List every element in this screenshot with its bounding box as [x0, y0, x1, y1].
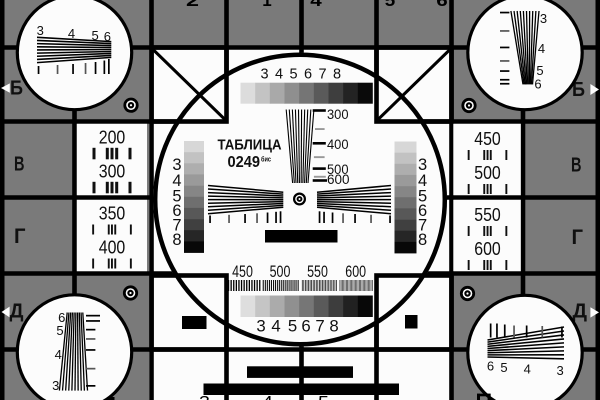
- svg-text:В: В: [571, 155, 582, 177]
- svg-text:8: 8: [329, 316, 338, 335]
- svg-text:Д: Д: [573, 300, 588, 322]
- svg-text:3: 3: [540, 11, 547, 26]
- svg-text:2: 2: [186, 0, 199, 10]
- svg-text:6: 6: [534, 77, 541, 92]
- svg-text:4: 4: [310, 0, 322, 10]
- svg-text:Г: Г: [572, 226, 584, 249]
- svg-text:4: 4: [55, 347, 62, 362]
- svg-text:6: 6: [104, 29, 111, 44]
- svg-text:0249: 0249: [228, 154, 261, 171]
- svg-text:600: 600: [327, 172, 350, 187]
- svg-text:8: 8: [418, 231, 427, 249]
- svg-text:бис: бис: [261, 154, 271, 163]
- svg-text:300: 300: [99, 160, 126, 181]
- svg-text:5: 5: [288, 316, 297, 335]
- svg-text:3: 3: [260, 67, 268, 83]
- svg-text:5: 5: [91, 28, 98, 43]
- svg-text:Г: Г: [14, 225, 26, 248]
- svg-text:1: 1: [262, 0, 271, 10]
- svg-text:600: 600: [345, 262, 366, 281]
- svg-text:3: 3: [37, 23, 44, 38]
- svg-text:6: 6: [436, 0, 448, 10]
- svg-text:450: 450: [232, 262, 253, 281]
- svg-text:4: 4: [271, 316, 280, 335]
- svg-text:4: 4: [68, 26, 75, 41]
- svg-text:500: 500: [474, 162, 501, 183]
- svg-text:6: 6: [487, 358, 494, 373]
- svg-text:5: 5: [385, 0, 396, 10]
- svg-text:5: 5: [289, 67, 297, 83]
- svg-text:Д: Д: [10, 300, 24, 322]
- svg-text:7: 7: [315, 316, 324, 335]
- svg-text:300: 300: [327, 107, 349, 122]
- svg-text:350: 350: [99, 202, 126, 223]
- svg-text:7: 7: [318, 67, 326, 83]
- svg-text:4: 4: [538, 41, 545, 56]
- svg-text:3: 3: [52, 378, 59, 393]
- svg-text:550: 550: [474, 204, 501, 225]
- svg-text:6: 6: [301, 316, 310, 335]
- svg-text:200: 200: [99, 126, 126, 147]
- svg-text:400: 400: [99, 236, 126, 257]
- svg-text:В: В: [14, 153, 25, 175]
- svg-text:6: 6: [304, 67, 312, 83]
- svg-text:3: 3: [256, 316, 265, 335]
- svg-text:5: 5: [500, 360, 507, 375]
- svg-text:3: 3: [556, 363, 563, 378]
- svg-text:ТАБЛИЦА: ТАБЛИЦА: [218, 138, 282, 154]
- svg-text:550: 550: [307, 262, 328, 281]
- svg-text:Б: Б: [10, 78, 23, 100]
- svg-text:8: 8: [172, 231, 181, 249]
- svg-text:8: 8: [333, 67, 341, 83]
- svg-text:600: 600: [474, 238, 501, 259]
- svg-text:400: 400: [327, 137, 349, 152]
- svg-text:4: 4: [524, 361, 531, 376]
- svg-text:5: 5: [56, 323, 63, 338]
- svg-text:500: 500: [270, 262, 291, 281]
- svg-text:4: 4: [275, 67, 283, 83]
- svg-text:450: 450: [474, 128, 501, 149]
